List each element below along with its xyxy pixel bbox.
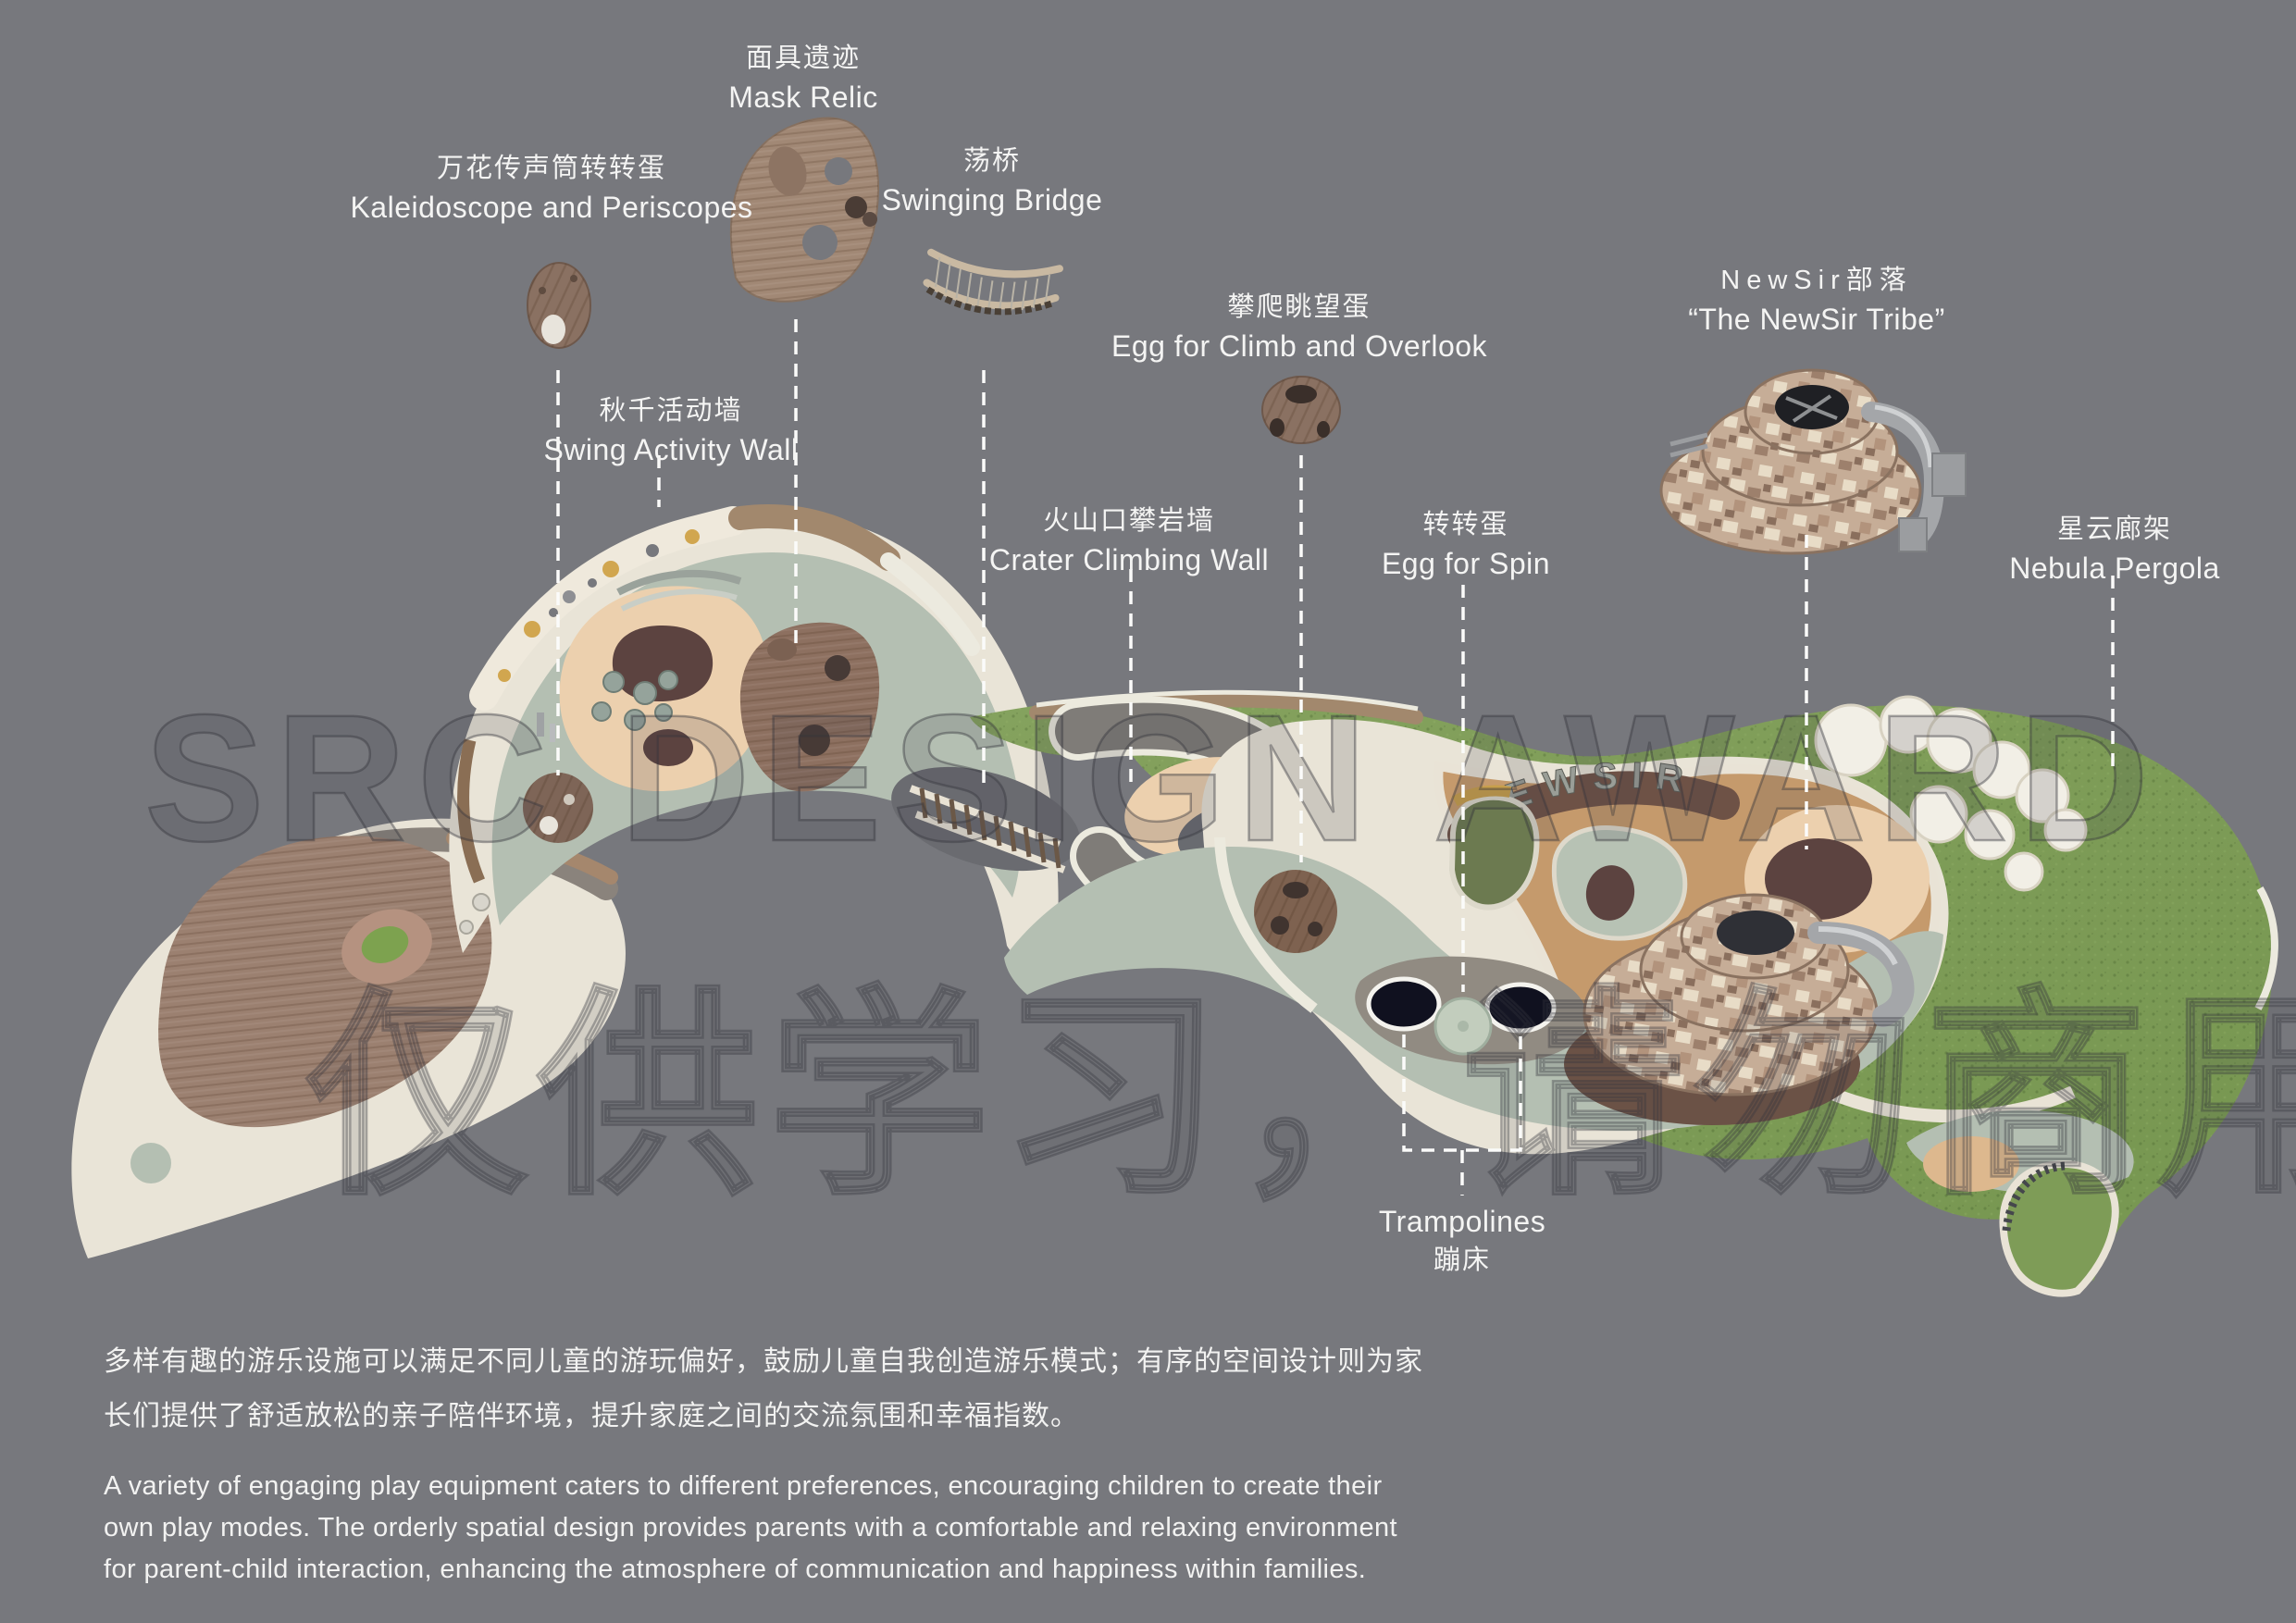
callout-egg-spin-zh: 转转蛋 — [1142, 507, 1790, 542]
equipment-egg-climb-icon — [1262, 377, 1340, 443]
callout-mask-relic: 面具遗迹 Mask Relic — [479, 41, 1127, 116]
callout-egg-spin: 转转蛋 Egg for Spin — [1142, 507, 1790, 582]
slide-box — [1932, 453, 1966, 496]
egg-opening — [1308, 922, 1322, 936]
pebble — [460, 921, 473, 934]
egg-opening — [1283, 882, 1309, 898]
watermark-notice: 仅供学习，请勿商用 — [305, 973, 2296, 1220]
callout-newsir-tribe-zh: NewSir部落 — [1493, 263, 2141, 298]
callout-swinging-bridge: 荡桥 Swinging Bridge — [668, 143, 1316, 218]
callout-mask-relic-en: Mask Relic — [479, 79, 1127, 116]
callout-egg-spin-en: Egg for Spin — [1142, 545, 1790, 582]
presentation-board: NEWSIR — [0, 0, 2296, 1623]
callout-newsir-tribe: NewSir部落 “The NewSir Tribe” — [1493, 263, 2141, 338]
description-chinese-line1: 多样有趣的游乐设施可以满足不同儿童的游玩偏好，鼓励儿童自我创造游乐模式；有序的空… — [104, 1334, 1423, 1389]
watermark-title: SRC DESIGN AWARD — [144, 677, 2160, 879]
description-english-line1: A variety of engaging play equipment cat… — [104, 1466, 1397, 1507]
egg-opening — [1271, 916, 1289, 935]
callout-swing-wall: 秋千活动墙 Swing Activity Wall — [347, 393, 995, 468]
callout-swinging-bridge-en: Swinging Bridge — [668, 181, 1316, 218]
callout-swinging-bridge-zh: 荡桥 — [668, 143, 1316, 179]
callout-newsir-tribe-en: “The NewSir Tribe” — [1493, 301, 2141, 338]
description-english-line2: own play modes. The orderly spatial desi… — [104, 1507, 1397, 1549]
description-chinese: 多样有趣的游乐设施可以满足不同儿童的游玩偏好，鼓励儿童自我创造游乐模式；有序的空… — [104, 1334, 1423, 1443]
callout-trampolines: Trampolines 蹦床 — [1138, 1203, 1786, 1278]
description-english-line3: for parent-child interaction, enhancing … — [104, 1549, 1397, 1591]
callout-trampolines-zh: 蹦床 — [1138, 1243, 1786, 1278]
pebble — [473, 894, 490, 911]
callout-nebula-pergola-zh: 星云廊架 — [1791, 512, 2296, 547]
callout-nebula-pergola-en: Nebula Pergola — [1791, 550, 2296, 587]
callout-swing-wall-en: Swing Activity Wall — [347, 431, 995, 468]
callout-swing-wall-zh: 秋千活动墙 — [347, 393, 995, 428]
description-english: A variety of engaging play equipment cat… — [104, 1466, 1397, 1591]
callout-mask-relic-zh: 面具遗迹 — [479, 41, 1127, 76]
callout-nebula-pergola: 星云廊架 Nebula Pergola — [1791, 512, 2296, 587]
mask-bump — [767, 638, 797, 661]
sage-dot — [130, 1143, 171, 1183]
equipment-kaleidoscope-icon — [527, 263, 590, 348]
description-chinese-line2: 长们提供了舒适放松的亲子陪伴环境，提升家庭之间的交流氛围和幸福指数。 — [104, 1389, 1423, 1443]
callout-trampolines-en: Trampolines — [1138, 1203, 1786, 1240]
